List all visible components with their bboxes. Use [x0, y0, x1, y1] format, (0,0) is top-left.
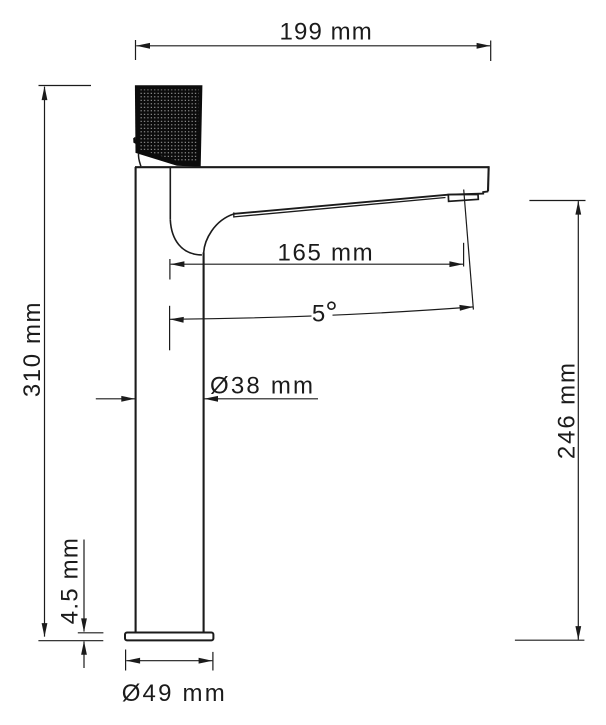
svg-text:5°: 5° [312, 295, 338, 330]
svg-text:Ø38 mm: Ø38 mm [210, 372, 315, 399]
svg-text:199 mm: 199 mm [280, 19, 373, 46]
svg-text:Ø49 mm: Ø49 mm [122, 680, 227, 707]
svg-text:246 mm: 246 mm [553, 361, 580, 459]
svg-text:4.5 mm: 4.5 mm [56, 537, 83, 624]
svg-text:310 mm: 310 mm [19, 301, 46, 397]
svg-text:165 mm: 165 mm [277, 239, 374, 266]
